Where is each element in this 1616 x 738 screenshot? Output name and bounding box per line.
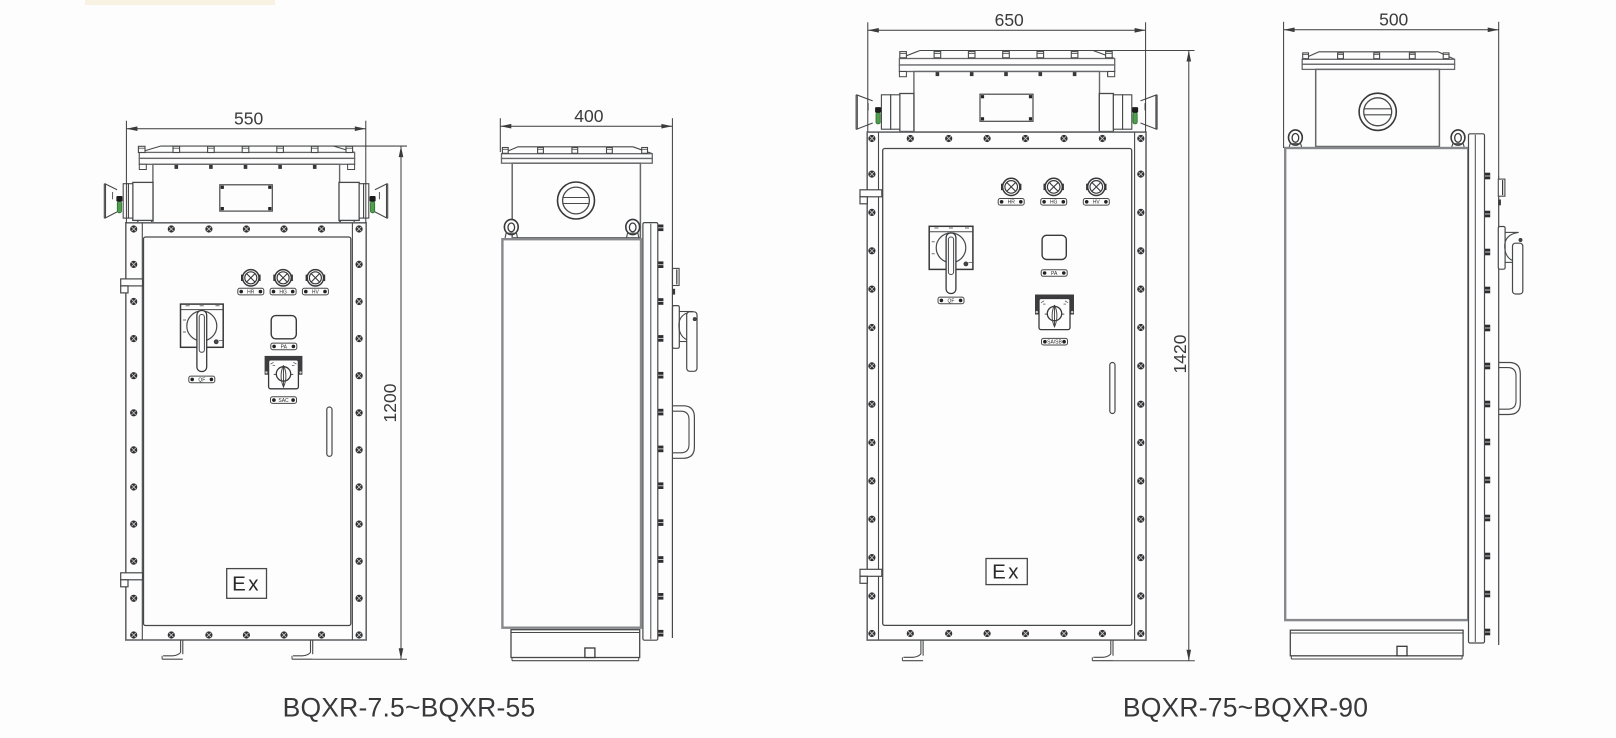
svg-text:1200: 1200 xyxy=(380,383,400,422)
svg-text:HG: HG xyxy=(279,290,287,296)
svg-text:Ex: Ex xyxy=(992,561,1021,584)
svg-text:HR: HR xyxy=(1008,200,1016,206)
svg-text:BQXR-75~BQXR-90: BQXR-75~BQXR-90 xyxy=(1123,693,1368,723)
svg-text:QF: QF xyxy=(198,377,205,383)
svg-text:Ex: Ex xyxy=(232,573,261,596)
svg-text:QF: QF xyxy=(948,298,955,304)
svg-text:400: 400 xyxy=(574,106,603,126)
svg-text:650: 650 xyxy=(995,10,1024,30)
svg-text:HV: HV xyxy=(312,290,320,296)
svg-text:550: 550 xyxy=(234,109,263,129)
svg-text:HG: HG xyxy=(1050,200,1058,206)
svg-text:SAC: SAC xyxy=(278,398,289,404)
svg-text:PA: PA xyxy=(281,344,288,350)
svg-text:BQXR-7.5~BQXR-55: BQXR-7.5~BQXR-55 xyxy=(283,693,536,723)
svg-text:PA: PA xyxy=(1051,271,1058,277)
svg-text:1420: 1420 xyxy=(1170,334,1190,373)
svg-text:HV: HV xyxy=(1093,200,1101,206)
svg-text:SA/SB: SA/SB xyxy=(1047,340,1062,346)
svg-text:HR: HR xyxy=(247,290,255,296)
svg-text:500: 500 xyxy=(1379,10,1408,30)
